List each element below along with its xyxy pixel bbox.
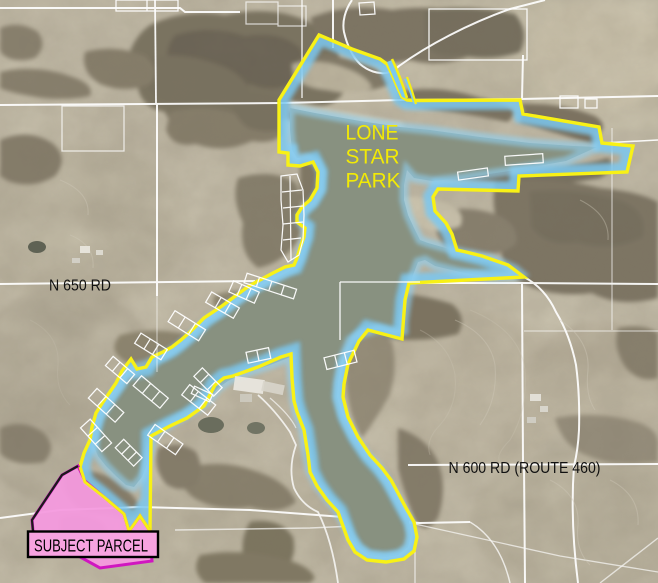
svg-text:LONE: LONE [346,121,399,145]
svg-text:PARK: PARK [346,169,402,193]
svg-text:N 650 RD: N 650 RD [49,278,111,295]
svg-text:SUBJECT PARCEL: SUBJECT PARCEL [34,536,148,556]
svg-text:N 600 RD (ROUTE 460): N 600 RD (ROUTE 460) [449,460,601,477]
svg-text:STAR: STAR [346,145,400,169]
